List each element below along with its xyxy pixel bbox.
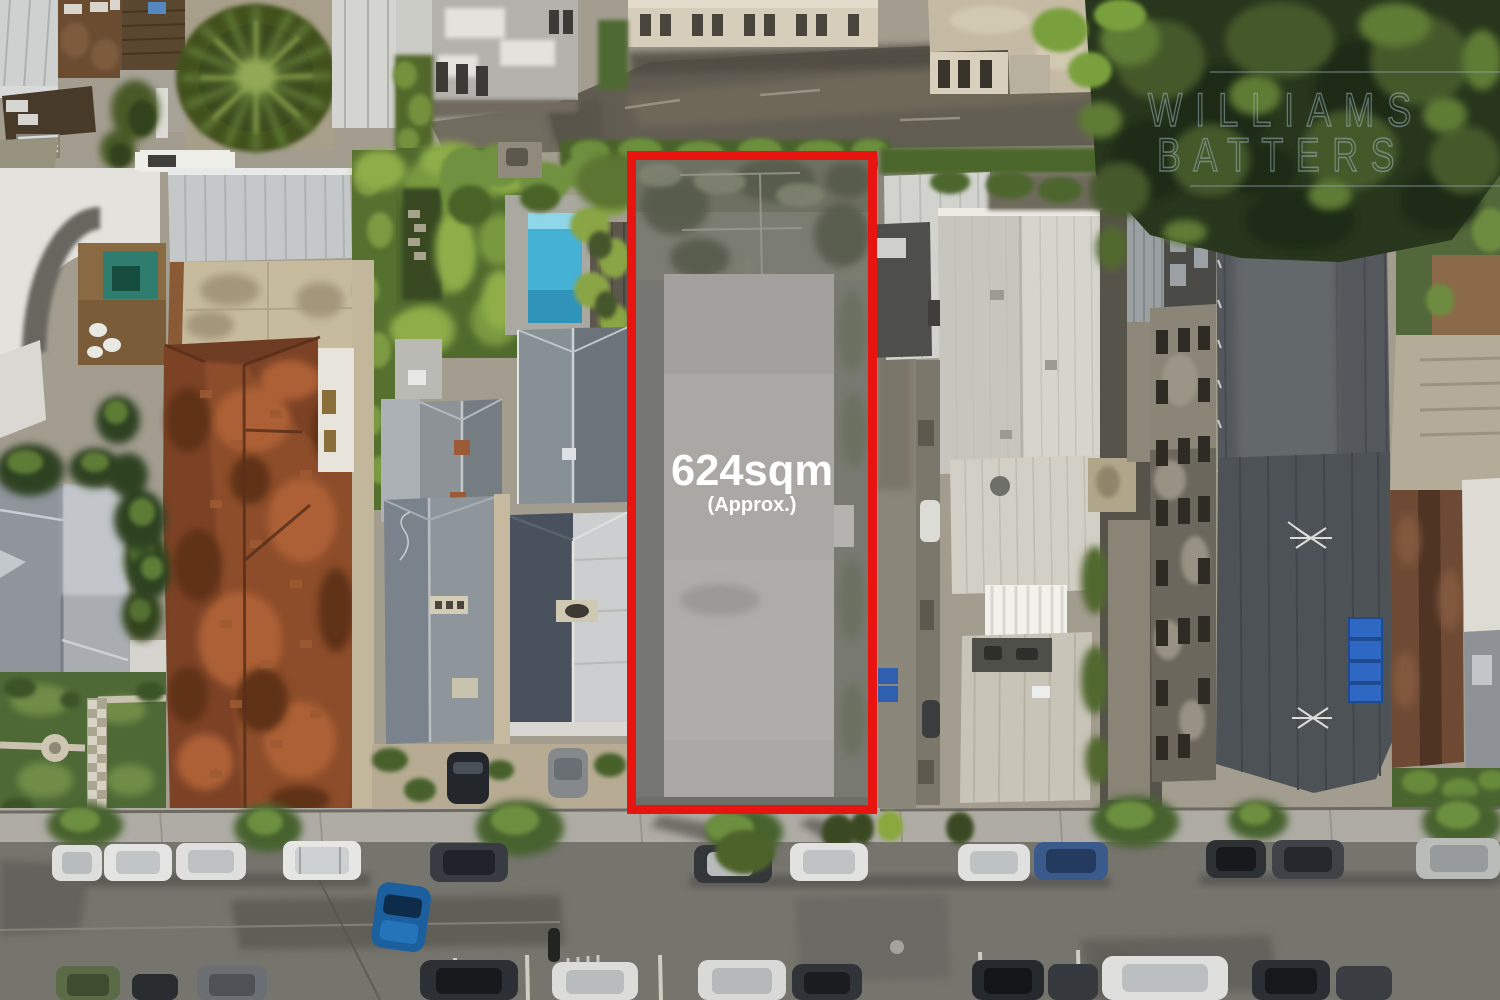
svg-text:624sqm: 624sqm (671, 447, 833, 495)
svg-text:(Approx.): (Approx.) (708, 494, 797, 516)
svg-text:BATTERS: BATTERS (1157, 129, 1407, 182)
